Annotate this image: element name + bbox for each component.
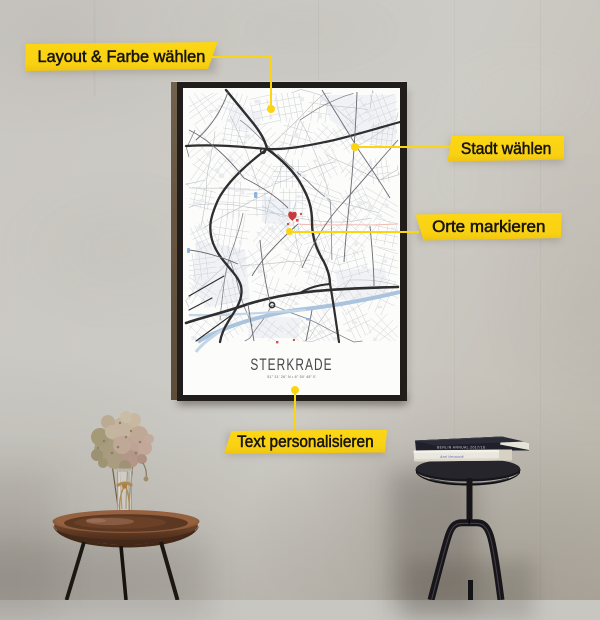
svg-text:BERLIN ANNUAL 2017/18: BERLIN ANNUAL 2017/18: [437, 446, 485, 450]
svg-text:Axel Vervoordt: Axel Vervoordt: [439, 455, 464, 459]
